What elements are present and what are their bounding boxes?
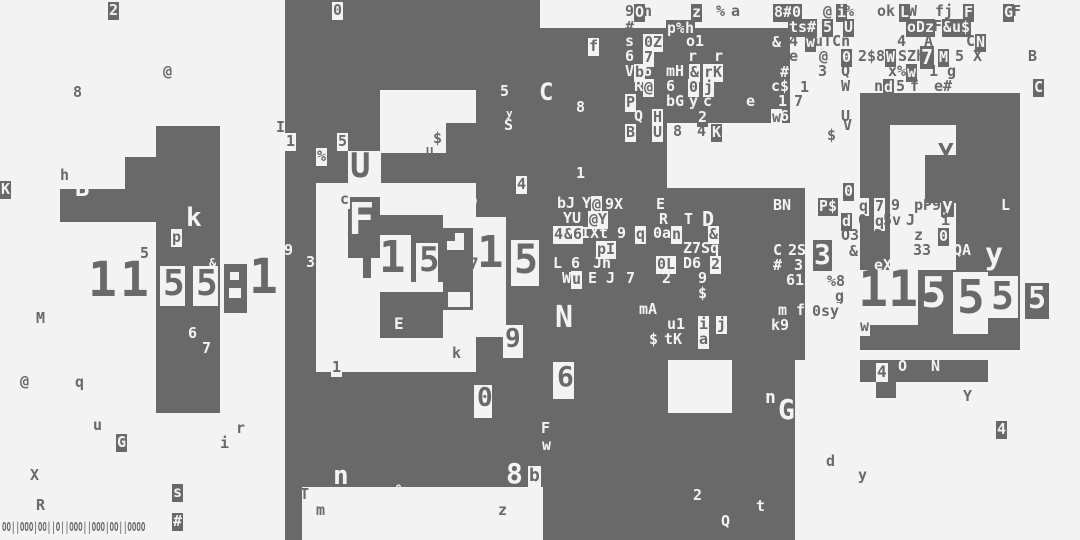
glyph: y	[985, 240, 1003, 270]
glyph: 3	[306, 255, 315, 270]
glyph: V2	[841, 318, 859, 333]
glyph: F	[541, 421, 550, 436]
glyph: GE	[778, 396, 812, 424]
glyph: 6	[780, 109, 789, 124]
glyph: %	[845, 4, 854, 19]
glyph: K	[711, 124, 722, 142]
glyph: 8	[673, 124, 682, 139]
glyph: j	[716, 316, 727, 334]
glyph: 1	[88, 256, 117, 304]
glyph: $	[648, 331, 659, 349]
glyph: d	[883, 79, 894, 97]
glyph: r	[236, 421, 245, 436]
glyph: 5	[896, 79, 905, 94]
glyph: W	[562, 271, 571, 286]
glyph: 2	[693, 488, 702, 503]
glyph: 5	[628, 211, 637, 226]
glyph: 0a	[653, 226, 671, 241]
glyph: @	[823, 4, 832, 19]
glyph: F	[348, 198, 375, 242]
glyph: E	[394, 316, 404, 332]
glyph: 4	[811, 318, 820, 333]
glyph: 3	[813, 240, 832, 271]
glyph: 5	[955, 49, 964, 64]
glyph: 3	[818, 64, 827, 79]
glyph: mA	[638, 301, 658, 319]
glyph: pP9	[914, 198, 941, 213]
dark-inner-block	[363, 258, 371, 278]
glyph: &	[956, 150, 965, 165]
glyph: O	[898, 359, 907, 374]
glyph: O3	[841, 228, 859, 243]
glyph: n	[671, 226, 682, 244]
glyph: v	[892, 213, 901, 228]
glyph: V	[625, 64, 634, 79]
glyph: w	[542, 438, 551, 453]
glyph: B	[625, 124, 636, 142]
glyph: 9	[617, 226, 626, 241]
glyph: 1	[331, 359, 342, 377]
glyph: 4	[664, 196, 673, 211]
glyph: S	[504, 118, 513, 133]
glyph: 5	[883, 213, 892, 228]
glyph: f	[910, 79, 919, 94]
glyph: z	[498, 503, 507, 518]
glyph: 8	[73, 85, 82, 100]
glyph: s	[172, 484, 183, 502]
glyph: U	[350, 149, 370, 183]
glyph: N	[931, 359, 940, 374]
glyph: k9	[771, 318, 789, 333]
glyph: u	[93, 418, 102, 433]
glyph: 1	[477, 231, 504, 275]
glyph: q	[74, 374, 85, 392]
glyph: 6	[557, 363, 574, 391]
glyph: 8	[576, 100, 585, 115]
glyph: e	[746, 94, 755, 109]
glyph: i	[941, 213, 950, 228]
light-tile	[229, 288, 241, 298]
glyph: 6	[643, 64, 652, 79]
glyph: n	[643, 4, 652, 19]
glyph: t	[756, 499, 765, 514]
glyph: 5	[419, 243, 439, 277]
glyph: YU	[563, 211, 581, 226]
glyph: 4	[697, 124, 706, 139]
glyph: 9	[505, 326, 521, 352]
glyph: tK	[663, 331, 683, 349]
glyph: 1	[576, 166, 585, 181]
glyph: $	[827, 198, 838, 216]
glyph: d	[826, 454, 835, 469]
glyph: 33	[913, 243, 931, 258]
glyph: L	[1001, 198, 1010, 213]
glyph: OO||OOO|OO||O||OOO||OOO|OO||OOOO	[2, 521, 145, 533]
glyph: y	[858, 468, 867, 483]
glyph: 2$8	[858, 49, 885, 64]
glyph: k	[186, 205, 202, 231]
light-tile	[668, 360, 732, 413]
glyph: 5	[514, 240, 538, 280]
glyph: b	[528, 466, 541, 487]
glyph: 4	[876, 363, 888, 382]
glyph: 1	[379, 236, 406, 280]
glyph: 5	[337, 133, 348, 151]
glyph: E J	[588, 271, 615, 286]
glyph: C	[539, 80, 553, 104]
glyph: 9	[625, 4, 634, 19]
glyph: Y	[582, 196, 591, 211]
light-tile	[380, 90, 476, 123]
glyph: w	[859, 318, 870, 336]
dark-block	[876, 382, 896, 398]
glyph: U	[426, 146, 433, 158]
glyph: X	[973, 49, 982, 64]
glyph: 7	[794, 94, 803, 109]
glyph: $	[433, 131, 442, 146]
glyph: U	[507, 74, 523, 100]
glyph: X	[30, 468, 39, 483]
glyph: B	[1028, 49, 1037, 64]
glyph: Q	[634, 109, 643, 124]
dark-block	[540, 123, 667, 188]
glyph: 8	[506, 460, 523, 488]
glyph: 7	[202, 341, 211, 356]
glyph: 5	[1028, 284, 1046, 314]
glyph: a	[698, 331, 709, 349]
glyph: m	[316, 503, 325, 518]
glyph: 8	[682, 109, 691, 124]
glyph: n	[765, 389, 776, 407]
glyph: n	[333, 463, 349, 489]
glyph: 5	[991, 277, 1014, 315]
glyph: %	[396, 483, 405, 498]
glyph: I	[276, 120, 285, 135]
glyph: K	[0, 181, 11, 199]
glyph: n	[874, 79, 883, 94]
glyph: 4	[996, 421, 1007, 439]
glyph: N	[555, 303, 573, 333]
glyph: r	[714, 49, 723, 64]
glyph: #	[773, 258, 782, 273]
glyph: r	[688, 49, 697, 64]
glyph: U	[652, 124, 663, 142]
glyph: l x	[628, 241, 655, 256]
glyph: @	[20, 374, 29, 389]
glyph: 1	[888, 264, 918, 314]
glyph: #	[692, 211, 701, 226]
glyph: &	[771, 34, 782, 52]
glyph: e#	[934, 79, 952, 94]
glyph: W	[908, 4, 917, 19]
glyph: S	[466, 188, 478, 208]
glyph: V	[843, 118, 852, 133]
glyph: 6	[188, 326, 197, 341]
glyph: p	[171, 229, 182, 247]
dark-block	[125, 157, 156, 189]
glyph: T	[300, 487, 309, 502]
glyph: Y	[938, 141, 954, 167]
light-tile	[230, 272, 239, 280]
glyph: M	[683, 196, 692, 211]
dark-inner-block	[380, 292, 443, 338]
glyph: f	[588, 38, 599, 56]
glyph: 1	[285, 133, 296, 151]
glyph: k	[451, 345, 462, 363]
glyph: G	[116, 434, 127, 452]
glyph: 9	[284, 243, 293, 258]
glyph: 1	[120, 256, 149, 304]
glyph: @	[643, 79, 654, 97]
light-inner-tile	[455, 233, 464, 250]
glitch-art-canvas: 209Onz%a#p%h8#0@i%okLWfjFGFts#5UoDzF&u$&…	[0, 0, 1080, 540]
glyph: B	[711, 109, 720, 124]
glyph: 5	[921, 272, 946, 314]
light-inner-tile	[448, 292, 470, 307]
glyph: 7	[626, 271, 635, 286]
glyph: IXt	[581, 226, 608, 241]
glyph: 5	[196, 266, 218, 302]
glyph: B	[75, 176, 89, 200]
glyph: W	[841, 79, 850, 94]
glyph: 0	[332, 2, 343, 20]
glyph: F	[933, 19, 942, 34]
glyph: 0	[858, 213, 867, 228]
glyph: 2	[710, 256, 721, 274]
glyph: 0	[843, 183, 854, 201]
glyph: $	[827, 128, 836, 143]
glyph: 0	[938, 228, 949, 246]
glyph: F	[1012, 4, 1021, 19]
glyph: 1	[858, 264, 888, 314]
glyph: R	[634, 79, 643, 94]
glyph: 2	[662, 271, 671, 286]
glyph: 2	[108, 2, 119, 20]
glyph: h	[60, 168, 69, 183]
glyph: Q	[721, 514, 730, 529]
glyph: 0	[477, 385, 493, 411]
glyph: i	[220, 436, 229, 451]
glyph: 5	[957, 274, 985, 320]
glyph: QA	[953, 243, 971, 258]
glyph: Y	[963, 389, 972, 404]
glyph: R	[36, 498, 45, 513]
glyph: 4	[516, 176, 527, 194]
glyph: M	[36, 311, 45, 326]
glyph: 61	[786, 273, 804, 288]
glyph: C	[1033, 79, 1044, 97]
glyph: y	[829, 303, 840, 321]
glyph: #	[172, 513, 183, 531]
glyph: %	[316, 148, 327, 166]
glyph: %	[716, 4, 725, 19]
glyph: e	[789, 49, 798, 64]
glyph: BN	[773, 198, 791, 213]
glyph: 1	[249, 253, 278, 301]
glyph: 5	[163, 266, 185, 302]
glyph: $	[698, 286, 707, 301]
glyph: @	[163, 64, 172, 79]
glyph: u	[571, 271, 582, 289]
glyph: a	[731, 4, 740, 19]
glyph: ok	[877, 4, 895, 19]
